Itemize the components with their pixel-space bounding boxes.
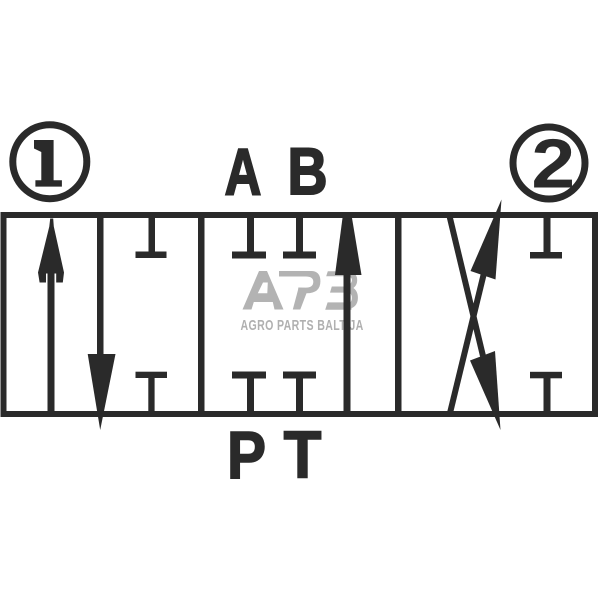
svg-text:T: T: [284, 417, 322, 492]
svg-text:2: 2: [531, 125, 575, 203]
svg-text:B: B: [287, 134, 327, 208]
svg-text:P: P: [227, 418, 266, 492]
svg-text:A: A: [225, 136, 262, 209]
